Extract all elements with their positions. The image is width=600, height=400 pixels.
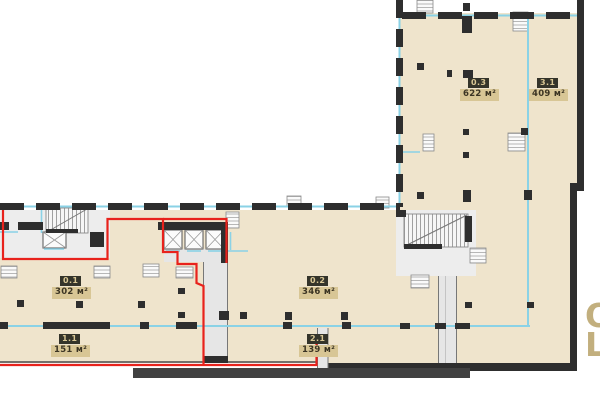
room-area: 346 м² — [299, 287, 338, 299]
room-number: 0.3 — [468, 78, 489, 88]
stairs-icon — [404, 214, 468, 247]
terrace-bar — [133, 368, 470, 378]
room-label-1-1[interactable]: 1.1 151 м² — [51, 334, 90, 357]
room-label-0-3[interactable]: 0.3 622 м² — [460, 78, 499, 101]
room-area: 139 м² — [299, 345, 338, 357]
room-label-0-2[interactable]: 0.2 346 м² — [299, 276, 338, 299]
room-label-0-1[interactable]: 0.1 302 м² — [52, 276, 91, 299]
room-area: 622 м² — [460, 89, 499, 101]
room-number: 2.1 — [307, 334, 328, 344]
floorplan-canvas: 0.1 302 м² 1.1 151 м² 0.2 346 м² 2.1 139… — [0, 0, 600, 400]
room-area: 302 м² — [52, 287, 91, 299]
room-number: 0.1 — [60, 276, 81, 286]
room-number: 3.1 — [537, 78, 558, 88]
elevator-icon — [43, 232, 66, 248]
elevator-icon — [185, 230, 203, 249]
elevator-icon — [164, 230, 182, 249]
room-label-3-1[interactable]: 3.1 409 м² — [529, 78, 568, 101]
room-number: 0.2 — [307, 276, 328, 286]
room-number: 1.1 — [59, 334, 80, 344]
room-label-2-1[interactable]: 2.1 139 м² — [299, 334, 338, 357]
edge-logo-text: O L — [585, 301, 600, 363]
room-area: 409 м² — [529, 89, 568, 101]
floor-areas — [0, 13, 577, 363]
room-area: 151 м² — [51, 345, 90, 357]
edge-logo-line2: L — [585, 330, 600, 359]
